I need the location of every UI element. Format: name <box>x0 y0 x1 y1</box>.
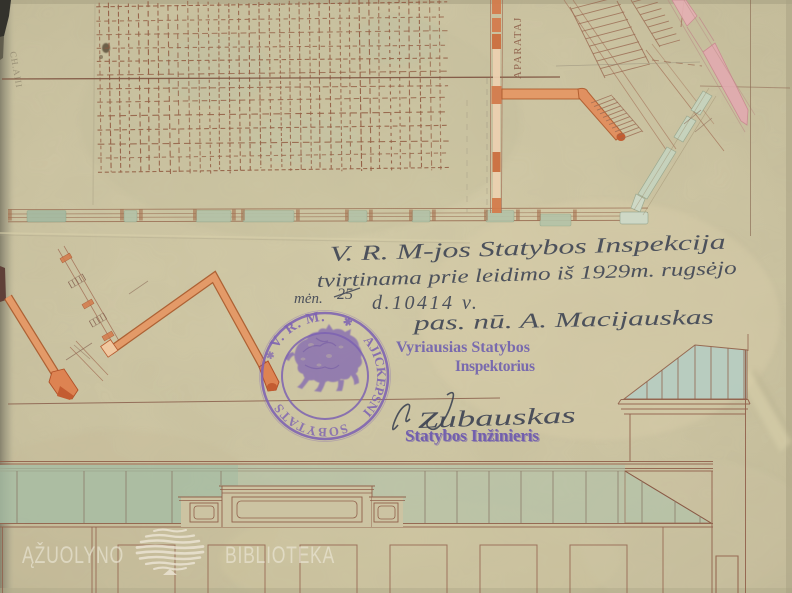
svg-text:APARATAJ: APARATAJ <box>513 16 524 79</box>
svg-text:mėn.: mėn. <box>294 291 323 307</box>
svg-text:BIBLIOTEKA: BIBLIOTEKA <box>225 542 335 569</box>
svg-text:ĄŽUOLYNO: ĄŽUOLYNO <box>22 542 124 569</box>
svg-text:Vyriausias Statybos: Vyriausias Statybos <box>396 339 530 356</box>
svg-text:Inspektorius: Inspektorius <box>455 358 535 375</box>
svg-text:Statybos Inžinieris: Statybos Inžinieris <box>405 426 539 445</box>
